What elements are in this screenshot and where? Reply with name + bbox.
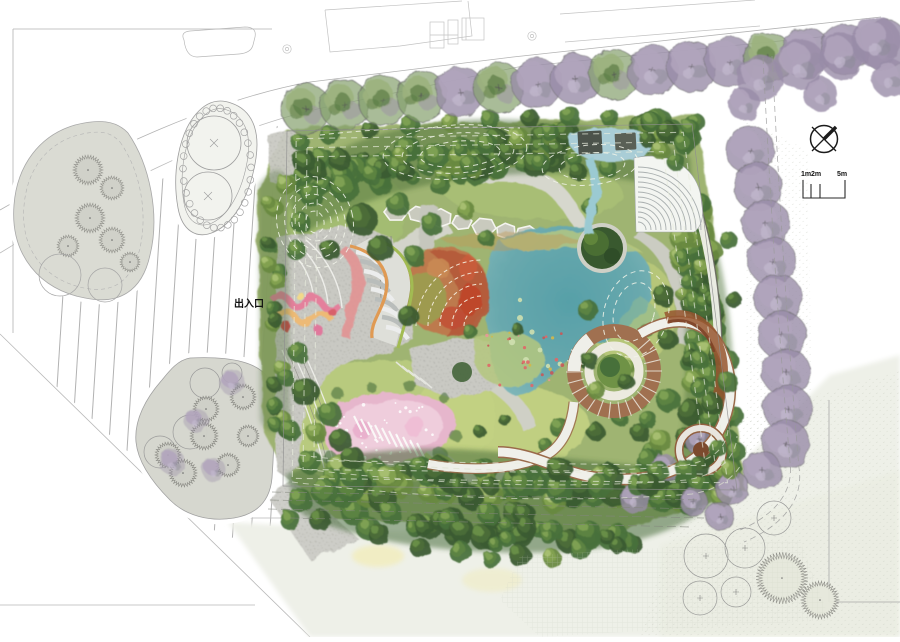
svg-text:2m: 2m — [811, 171, 821, 178]
svg-text:5m: 5m — [837, 171, 847, 178]
svg-text:出入口: 出入口 — [234, 297, 264, 310]
svg-text:1m: 1m — [801, 171, 811, 178]
